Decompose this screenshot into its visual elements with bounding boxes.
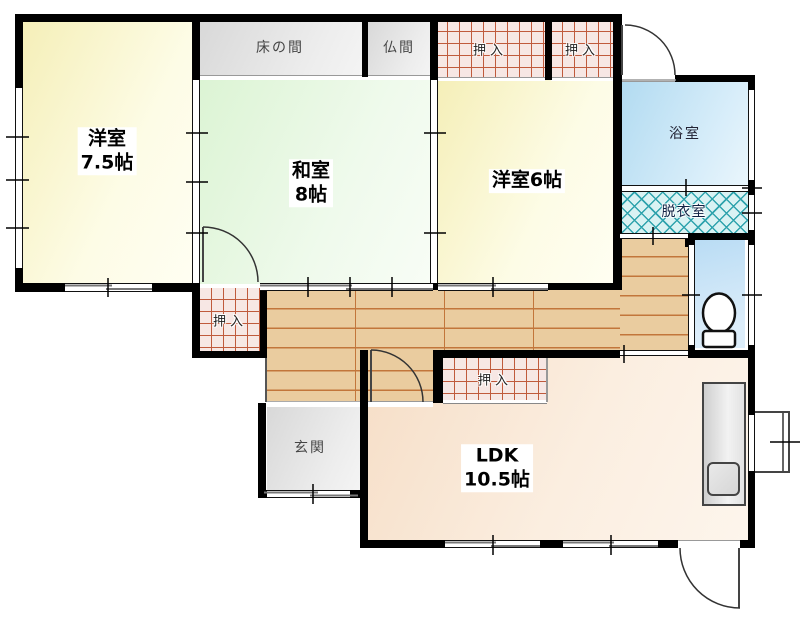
window (748, 195, 755, 230)
entrance-sliding-door (267, 490, 350, 498)
wall (688, 345, 695, 358)
sliding-door (438, 283, 548, 291)
wall (192, 14, 200, 80)
toilet-door (688, 245, 695, 345)
wall (258, 403, 266, 498)
wall (430, 14, 438, 80)
sliding-door (192, 80, 200, 283)
window (563, 540, 658, 548)
sliding-door (430, 80, 438, 283)
room-label-japanese-8: 和室 8帖 (289, 159, 333, 207)
hallway-wood-floor (267, 290, 622, 352)
room-name: LDK (464, 444, 530, 468)
wall (613, 14, 622, 290)
wall (360, 350, 368, 548)
wall (348, 490, 362, 498)
partition-bath-dressing (622, 185, 748, 192)
sliding-door (620, 350, 688, 356)
room-toilet (693, 240, 745, 348)
room-size: 8帖 (292, 183, 330, 207)
floor-plan: 洋室 7.5帖 和室 8帖 洋室6帖 LDK 10.5帖 床の間 仏間 押入 押… (0, 0, 800, 620)
label-bathroom: 浴室 (669, 123, 701, 143)
wall (545, 14, 552, 80)
closet-front-line (443, 400, 547, 404)
label-butsuma: 仏間 (383, 37, 415, 57)
room-size: 10.5帖 (464, 468, 530, 492)
wall (260, 288, 267, 352)
room-label-western-7_5: 洋室 7.5帖 (78, 127, 137, 175)
room-size: 7.5帖 (81, 151, 134, 175)
label-closet-3: 押入 (213, 311, 247, 330)
window (748, 415, 755, 471)
hallway-wood-floor (267, 352, 433, 403)
label-tokonoma: 床の間 (256, 37, 304, 57)
wall (15, 14, 23, 90)
wall (192, 351, 267, 358)
label-dressing-room: 脱衣室 (662, 201, 707, 221)
closet-front-line (551, 77, 613, 81)
window (748, 90, 755, 180)
window (445, 540, 540, 548)
wall (15, 14, 620, 22)
room-label-western-6: 洋室6帖 (489, 169, 565, 193)
bay-window-inner-line (782, 413, 784, 471)
window (15, 88, 23, 268)
label-entrance: 玄関 (294, 437, 326, 457)
alcove-front-line (198, 75, 430, 80)
door-opening (622, 75, 675, 82)
wall (548, 283, 622, 290)
label-closet-4: 押入 (478, 370, 512, 389)
entrance-step-edge (267, 401, 360, 407)
ldk-doorway-threshold (368, 401, 433, 407)
door-opening (678, 540, 740, 548)
window (65, 283, 152, 292)
kitchen-sink (707, 462, 740, 496)
room-name: 洋室 (81, 127, 134, 151)
wall (433, 350, 620, 358)
window (748, 245, 755, 345)
closet-front-line (436, 77, 545, 81)
wall (688, 350, 755, 358)
room-name: 和室 (292, 159, 330, 183)
sliding-door (260, 283, 433, 291)
closet-side-line (546, 358, 548, 402)
hall-edge-line (265, 352, 267, 402)
sliding-door (620, 233, 688, 239)
bay-window (752, 411, 790, 473)
wall (362, 18, 368, 77)
label-closet-2: 押入 (565, 40, 599, 59)
wall (688, 233, 755, 240)
room-label-ldk: LDK 10.5帖 (461, 444, 533, 492)
label-closet-1: 押入 (473, 40, 507, 59)
wall (433, 350, 443, 403)
hallway-wood-floor (620, 238, 688, 352)
wall (192, 283, 200, 358)
wall (675, 75, 755, 82)
